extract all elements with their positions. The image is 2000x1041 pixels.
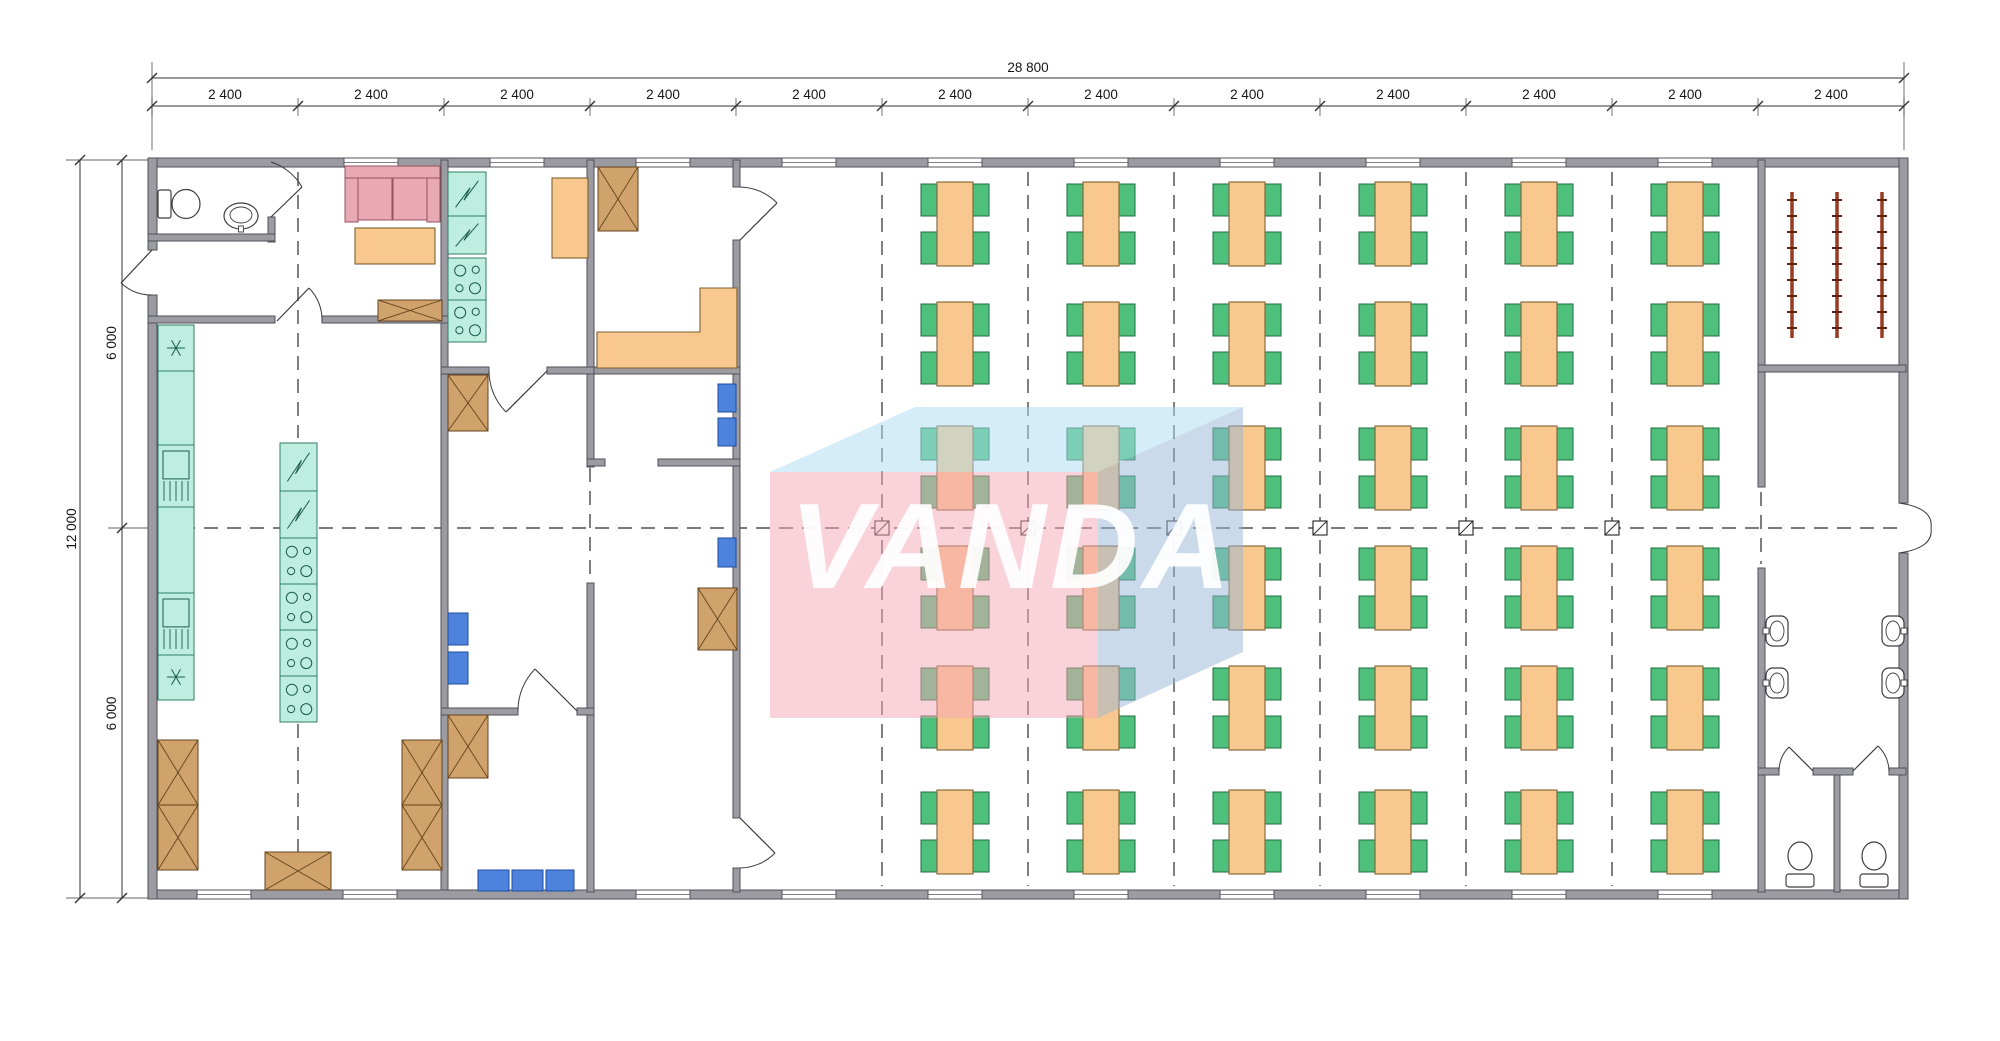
wall xyxy=(547,367,594,374)
dining-table xyxy=(937,182,973,266)
dining-chair xyxy=(1557,232,1573,264)
dining-table-group xyxy=(1651,666,1719,750)
dining-chair xyxy=(1359,548,1375,580)
dining-chair xyxy=(1557,596,1573,628)
dining-chair xyxy=(1359,304,1375,336)
dining-chair xyxy=(1119,716,1135,748)
toilet-tank xyxy=(1860,874,1888,887)
dining-chair xyxy=(1213,232,1229,264)
dining-chair xyxy=(1505,596,1521,628)
dining-table-group xyxy=(1651,426,1719,510)
dining-table xyxy=(1229,666,1265,750)
dining-chair xyxy=(1067,304,1083,336)
dining-chair xyxy=(1411,232,1427,264)
dining-chair xyxy=(1557,716,1573,748)
dining-chair xyxy=(1067,232,1083,264)
lounge-sofa xyxy=(345,166,440,222)
dining-table-group xyxy=(1359,426,1427,510)
counter-unit xyxy=(280,538,317,584)
dining-table-group xyxy=(1359,790,1427,874)
toilet-tank xyxy=(158,190,171,218)
dining-chair xyxy=(1557,840,1573,872)
dining-chair xyxy=(1703,184,1719,216)
dining-table-group xyxy=(1067,302,1135,386)
blue-chair xyxy=(718,384,736,412)
dining-chair xyxy=(1359,476,1375,508)
dining-table xyxy=(1375,546,1411,630)
wall xyxy=(1758,365,1906,372)
dining-table-group xyxy=(1651,790,1719,874)
counter-unit xyxy=(448,300,486,342)
dining-chair xyxy=(1119,840,1135,872)
dining-table-group xyxy=(921,182,989,266)
dining-chair xyxy=(1557,792,1573,824)
dining-table-group xyxy=(1505,182,1573,266)
dining-table xyxy=(1667,790,1703,874)
wall xyxy=(587,583,594,892)
dining-table-group xyxy=(1359,182,1427,266)
dining-chair xyxy=(1505,428,1521,460)
wall xyxy=(1899,553,1908,899)
dining-chair xyxy=(1505,304,1521,336)
blue-chair xyxy=(478,870,509,891)
toilet-bowl xyxy=(1862,842,1886,870)
dining-chair xyxy=(1265,428,1281,460)
dining-chair xyxy=(1557,476,1573,508)
dining-table xyxy=(937,790,973,874)
dining-chair xyxy=(1359,668,1375,700)
dining-chair xyxy=(1557,304,1573,336)
dining-chair xyxy=(1265,548,1281,580)
blue-chair xyxy=(512,870,543,891)
dining-chair xyxy=(1651,840,1667,872)
dining-table xyxy=(1667,546,1703,630)
dining-table-group xyxy=(1213,790,1281,874)
dining-table-group xyxy=(921,302,989,386)
wall xyxy=(148,316,275,323)
dining-table xyxy=(1083,182,1119,266)
wall xyxy=(441,708,518,715)
dining-table xyxy=(1521,182,1557,266)
dining-chair xyxy=(1067,792,1083,824)
dining-chair xyxy=(1703,352,1719,384)
counter-unit xyxy=(158,507,194,593)
dining-chair xyxy=(1067,840,1083,872)
blue-chair xyxy=(718,418,736,446)
dining-table xyxy=(1375,426,1411,510)
dining-table xyxy=(1229,182,1265,266)
dining-chair xyxy=(1213,304,1229,336)
wall xyxy=(1758,568,1765,892)
wall xyxy=(577,708,594,715)
dining-chair xyxy=(1651,232,1667,264)
dining-chair xyxy=(1067,716,1083,748)
dining-chair xyxy=(921,232,937,264)
dining-table-group xyxy=(1213,182,1281,266)
dining-chair xyxy=(1411,548,1427,580)
toilet-bowl xyxy=(172,190,200,219)
dining-chair xyxy=(1411,184,1427,216)
kitchen-equipment xyxy=(158,172,486,722)
dining-chair xyxy=(1411,716,1427,748)
dining-chair xyxy=(1265,840,1281,872)
dining-table xyxy=(1667,426,1703,510)
dining-table xyxy=(1667,182,1703,266)
dining-chair xyxy=(1703,668,1719,700)
blue-chair xyxy=(448,652,468,684)
dimension-module-label: 2 400 xyxy=(1522,87,1556,102)
tap-icon xyxy=(1763,680,1769,686)
dimension-total-width: 28 800 xyxy=(1007,60,1048,75)
dining-table xyxy=(1083,790,1119,874)
dining-chair xyxy=(1213,352,1229,384)
dining-chair xyxy=(1265,232,1281,264)
wall xyxy=(1889,768,1906,775)
dining-table xyxy=(1229,302,1265,386)
dining-chair xyxy=(1265,716,1281,748)
dining-chair xyxy=(1651,596,1667,628)
dimension-module-label: 2 400 xyxy=(1668,87,1702,102)
dining-chair xyxy=(1067,184,1083,216)
counter-unit xyxy=(448,258,486,300)
dining-table xyxy=(1375,666,1411,750)
wall xyxy=(441,367,489,374)
dining-chair xyxy=(1119,352,1135,384)
dining-chair xyxy=(1505,840,1521,872)
dining-table-group xyxy=(1505,546,1573,630)
dining-chair xyxy=(1119,184,1135,216)
dining-table xyxy=(1521,546,1557,630)
floor-plan-drawing: 28 800 12 000 2 4002 4002 4002 4002 4002… xyxy=(0,0,2000,1041)
dimension-module-label: 2 400 xyxy=(646,87,680,102)
prep-table xyxy=(552,178,588,258)
dining-table-group xyxy=(1651,546,1719,630)
floor-plan-page: 28 800 12 000 2 4002 4002 4002 4002 4002… xyxy=(0,0,2000,1041)
dimension-module-label: 2 400 xyxy=(1814,87,1848,102)
wall xyxy=(1758,768,1779,775)
dining-chair xyxy=(1265,184,1281,216)
dining-chair xyxy=(1557,428,1573,460)
dining-chair xyxy=(1703,304,1719,336)
dimension-module-label: 2 400 xyxy=(792,87,826,102)
dimension-module-label: 2 400 xyxy=(1084,87,1118,102)
dining-table xyxy=(1375,790,1411,874)
dining-chair xyxy=(1651,428,1667,460)
dining-chair xyxy=(1557,668,1573,700)
dining-chair xyxy=(1359,792,1375,824)
dimension-half-label: 6 000 xyxy=(104,326,119,360)
wall xyxy=(733,868,740,892)
wall xyxy=(1834,772,1840,892)
cloakroom xyxy=(1787,192,1887,338)
dining-chair xyxy=(973,840,989,872)
wall xyxy=(1899,158,1908,503)
dining-chair xyxy=(1651,184,1667,216)
dining-chair xyxy=(1651,792,1667,824)
dining-chair xyxy=(1213,184,1229,216)
dining-table-group xyxy=(1359,546,1427,630)
dining-chair xyxy=(1557,548,1573,580)
dining-table-group xyxy=(921,790,989,874)
dining-chair xyxy=(1505,184,1521,216)
dining-table xyxy=(1375,302,1411,386)
dining-table xyxy=(1667,302,1703,386)
wall xyxy=(587,459,605,466)
counter-unit xyxy=(280,584,317,630)
dining-table xyxy=(1083,302,1119,386)
dining-chair xyxy=(1703,840,1719,872)
lounge-table xyxy=(355,228,435,264)
dining-chair xyxy=(1119,792,1135,824)
dining-chair xyxy=(1557,352,1573,384)
dining-chair xyxy=(921,716,937,748)
sofa-part xyxy=(393,178,427,220)
dining-chair xyxy=(921,840,937,872)
dining-chair xyxy=(1265,352,1281,384)
dining-table xyxy=(1667,666,1703,750)
dimension-module-label: 2 400 xyxy=(1376,87,1410,102)
dining-chair xyxy=(1557,184,1573,216)
dining-chair xyxy=(1411,596,1427,628)
sofa-part xyxy=(358,178,392,220)
tap-icon xyxy=(1901,628,1907,634)
dining-table-group xyxy=(1067,790,1135,874)
dining-table-group xyxy=(1067,182,1135,266)
dining-chair xyxy=(1505,232,1521,264)
dining-chair xyxy=(1119,232,1135,264)
dining-table xyxy=(1375,182,1411,266)
dining-chair xyxy=(1703,428,1719,460)
dining-chair xyxy=(1359,184,1375,216)
dining-chair xyxy=(1703,596,1719,628)
dining-table-group xyxy=(1359,302,1427,386)
sofa-part xyxy=(427,178,440,222)
sofa-part xyxy=(345,166,440,179)
wall xyxy=(148,295,157,899)
wall xyxy=(148,890,1908,899)
dining-table-group xyxy=(1651,302,1719,386)
dining-chair xyxy=(1651,352,1667,384)
dining-chair xyxy=(1359,352,1375,384)
dining-chair xyxy=(1411,792,1427,824)
serving-counter xyxy=(597,288,737,368)
dining-chair xyxy=(921,792,937,824)
dining-chair xyxy=(1703,548,1719,580)
dining-table xyxy=(1229,790,1265,874)
dining-chair xyxy=(1651,716,1667,748)
dining-chair xyxy=(1265,792,1281,824)
dining-chair xyxy=(1651,476,1667,508)
dining-table-group xyxy=(1359,666,1427,750)
dining-chair xyxy=(973,232,989,264)
dining-chair xyxy=(1651,548,1667,580)
toilet-tank xyxy=(1786,874,1814,887)
dining-chair xyxy=(1411,476,1427,508)
dining-chair xyxy=(1359,596,1375,628)
counter-unit xyxy=(158,371,194,445)
dining-chair xyxy=(973,184,989,216)
dining-chair xyxy=(973,304,989,336)
dimension-total-height: 12 000 xyxy=(64,508,79,549)
dining-chair xyxy=(1265,596,1281,628)
sofa-part xyxy=(345,178,358,222)
dining-chair xyxy=(1213,668,1229,700)
dining-table xyxy=(1521,302,1557,386)
vanda-watermark: VANDA xyxy=(770,407,1243,718)
dining-chair xyxy=(1213,840,1229,872)
dining-chair xyxy=(1359,716,1375,748)
tap-icon xyxy=(1901,680,1907,686)
dining-chair xyxy=(1505,668,1521,700)
dining-chair xyxy=(1505,716,1521,748)
dining-chair xyxy=(1703,792,1719,824)
dining-chair xyxy=(1359,232,1375,264)
dining-chair xyxy=(1265,304,1281,336)
dining-chair xyxy=(1505,792,1521,824)
counter-unit xyxy=(280,630,317,676)
dining-chair xyxy=(1411,428,1427,460)
dining-table xyxy=(937,302,973,386)
dining-chair xyxy=(973,352,989,384)
tap-icon xyxy=(1763,628,1769,634)
dining-chair xyxy=(1119,304,1135,336)
dining-table xyxy=(1521,790,1557,874)
dining-chair xyxy=(1411,304,1427,336)
dining-chair xyxy=(1411,840,1427,872)
dining-chair xyxy=(973,716,989,748)
wall xyxy=(1813,768,1853,775)
wall xyxy=(148,234,275,241)
watermark-text: VANDA xyxy=(790,478,1235,614)
wall xyxy=(733,160,740,187)
dining-table-group xyxy=(1213,302,1281,386)
dining-chair xyxy=(1651,304,1667,336)
dining-chair xyxy=(921,184,937,216)
dining-chair xyxy=(921,352,937,384)
toilet-bowl xyxy=(1788,842,1812,870)
dining-chair xyxy=(1213,716,1229,748)
dining-chair xyxy=(1505,548,1521,580)
wall xyxy=(1758,160,1765,487)
dining-chair xyxy=(1265,476,1281,508)
dining-chair xyxy=(1703,232,1719,264)
dining-chair xyxy=(1651,668,1667,700)
dimension-module-label: 2 400 xyxy=(1230,87,1264,102)
dining-table-group xyxy=(1505,666,1573,750)
dining-chair xyxy=(1067,352,1083,384)
dining-chair xyxy=(1213,792,1229,824)
counter-unit xyxy=(280,676,317,722)
dining-chair xyxy=(1505,352,1521,384)
dining-chair xyxy=(1703,476,1719,508)
dining-table-group xyxy=(1651,182,1719,266)
dimension-module-label: 2 400 xyxy=(938,87,972,102)
dining-chair xyxy=(973,792,989,824)
blue-chair xyxy=(448,613,468,645)
dining-table-group xyxy=(1505,302,1573,386)
dining-table-group xyxy=(1505,426,1573,510)
dining-chair xyxy=(1359,840,1375,872)
dining-table-group xyxy=(1505,790,1573,874)
dining-chair xyxy=(1411,668,1427,700)
dining-table xyxy=(1521,666,1557,750)
blue-chair xyxy=(718,538,736,567)
dining-table xyxy=(1521,426,1557,510)
tap-icon xyxy=(239,226,244,232)
wall xyxy=(658,459,740,466)
dimension-module-label: 2 400 xyxy=(208,87,242,102)
dining-chair xyxy=(1411,352,1427,384)
dining-chair xyxy=(1505,476,1521,508)
dining-chair xyxy=(921,304,937,336)
dining-chair xyxy=(1359,428,1375,460)
dining-table-group xyxy=(1213,666,1281,750)
dining-chair xyxy=(1265,668,1281,700)
blue-chair xyxy=(546,870,574,891)
dimension-module-label: 2 400 xyxy=(500,87,534,102)
dimension-module-label: 2 400 xyxy=(354,87,388,102)
dining-chair xyxy=(1703,716,1719,748)
dimension-half-label: 6 000 xyxy=(104,697,119,731)
